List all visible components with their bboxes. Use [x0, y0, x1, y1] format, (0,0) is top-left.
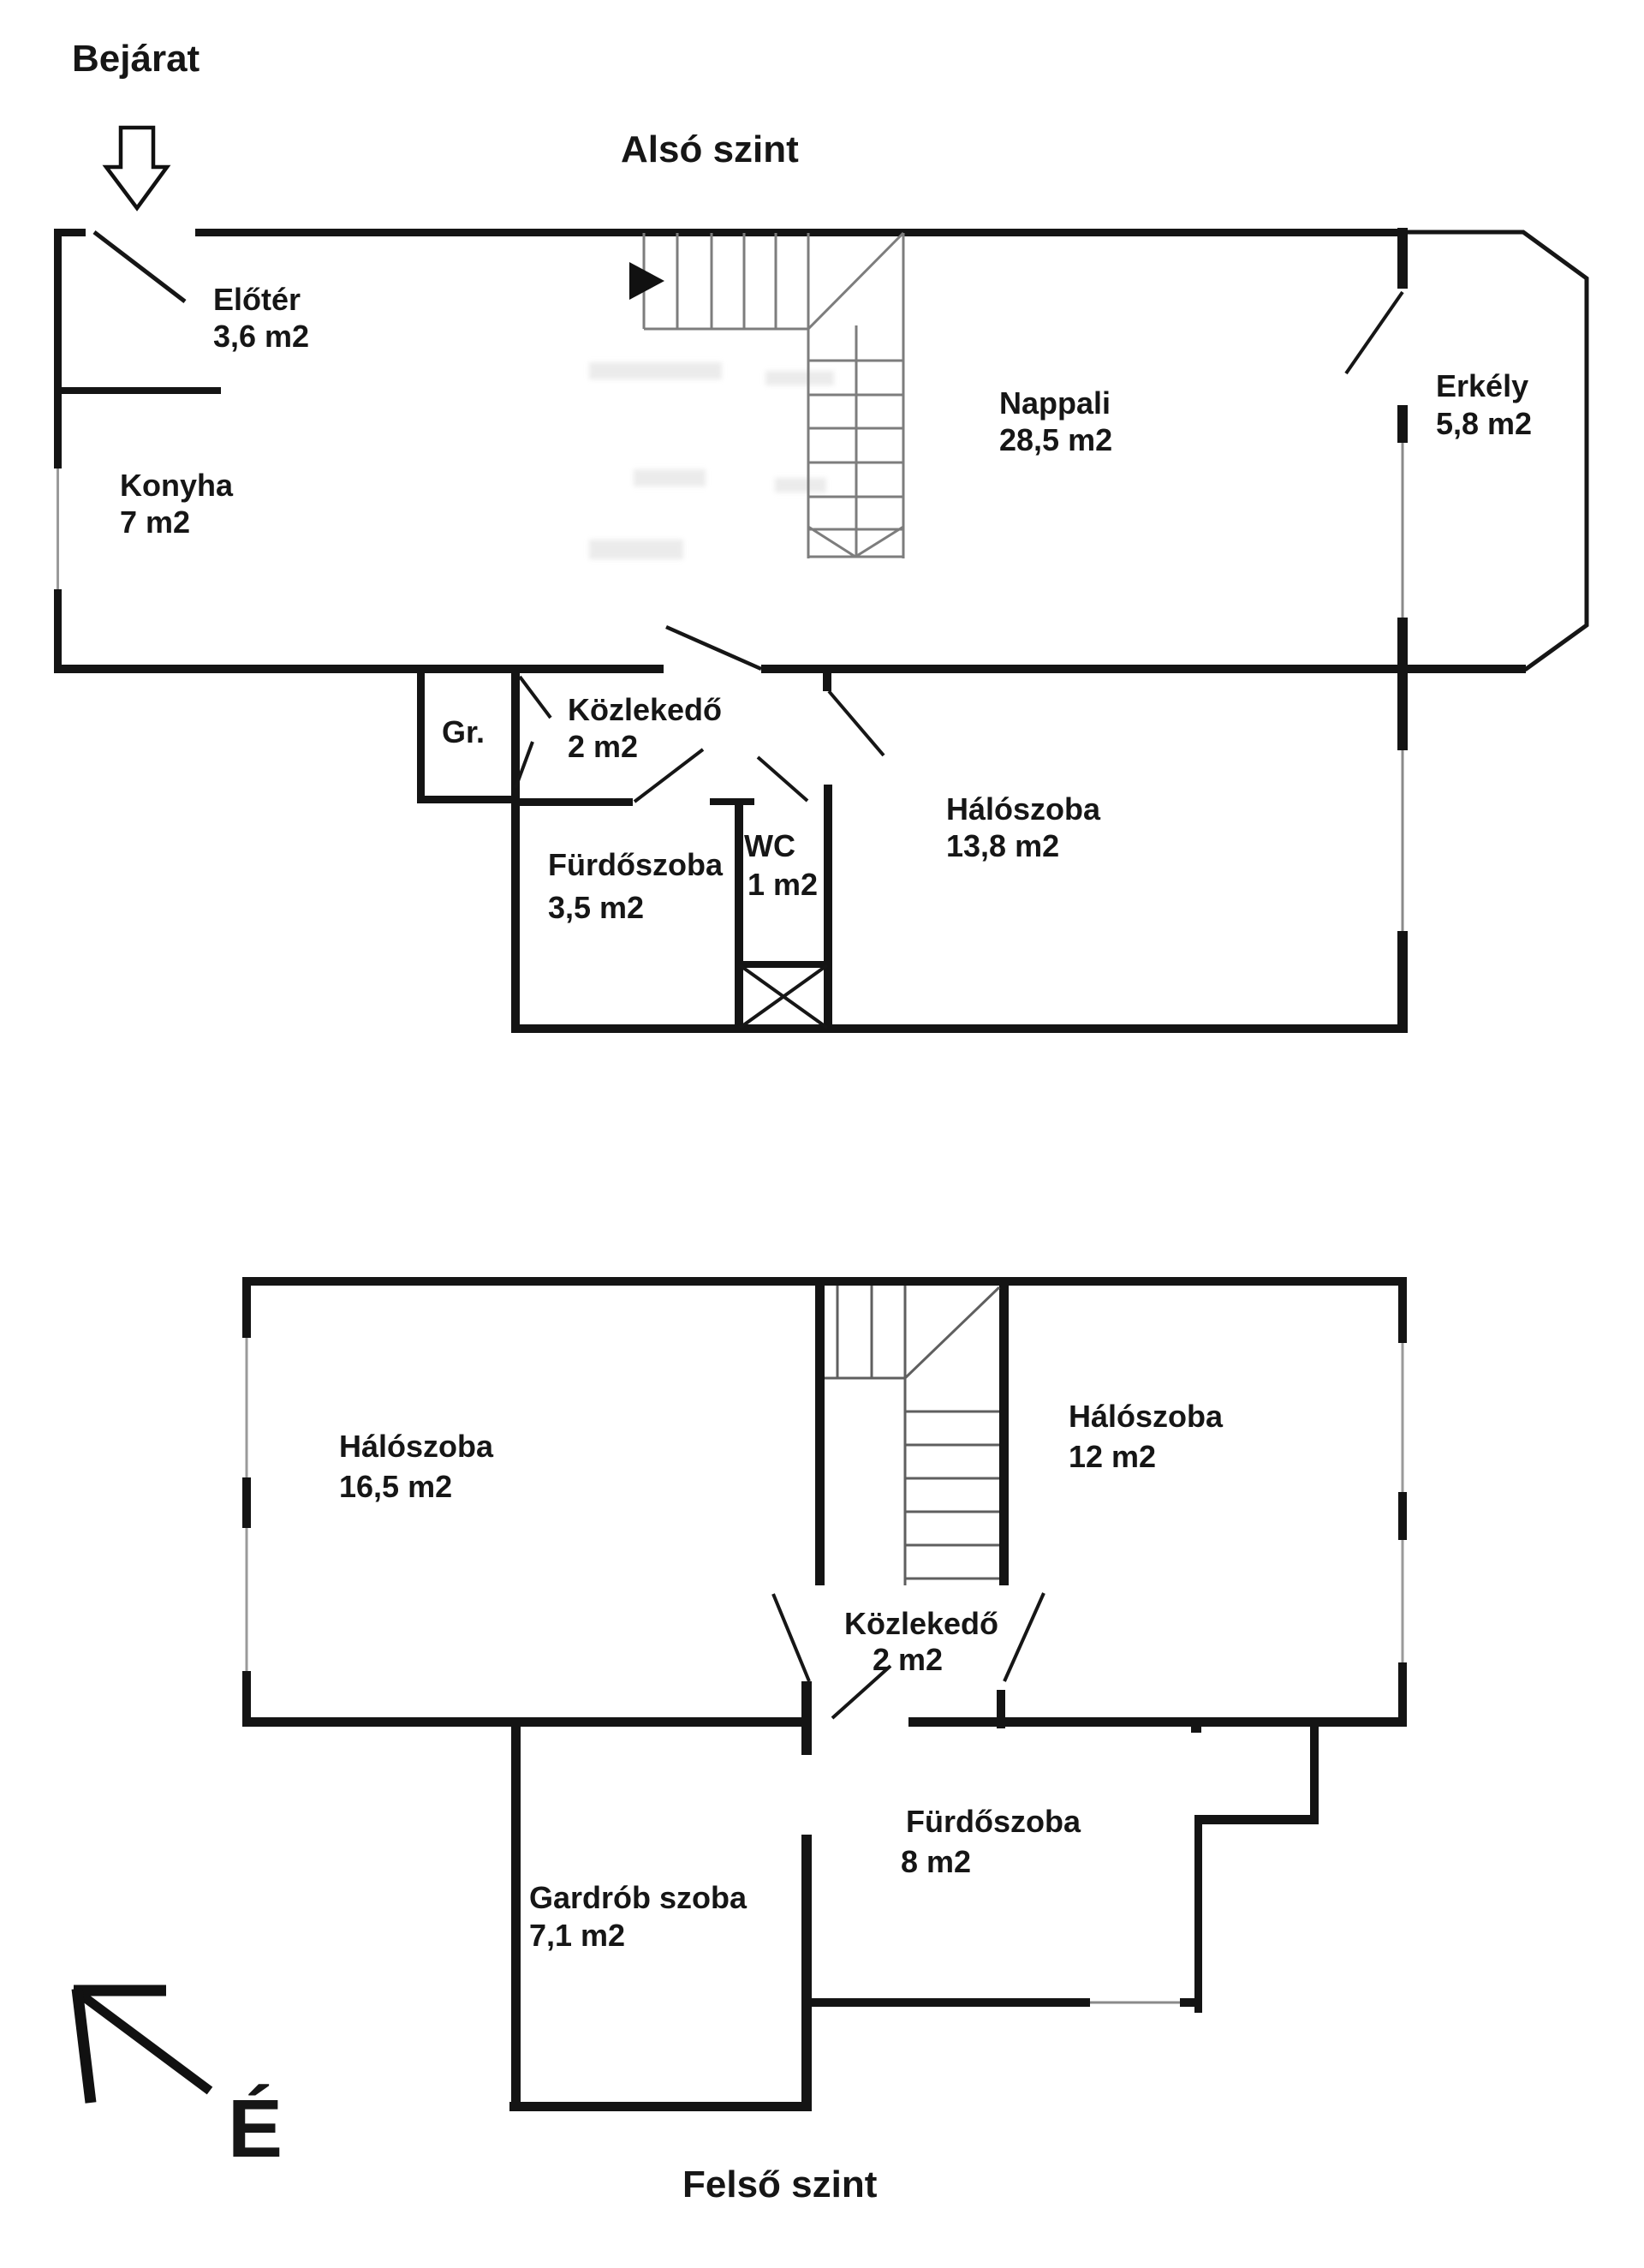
svg-text:Fürdőszoba: Fürdőszoba — [548, 847, 724, 882]
svg-text:28,5 m2: 28,5 m2 — [999, 422, 1112, 457]
svg-text:Felső szint: Felső szint — [682, 2164, 878, 2205]
svg-text:13,8 m2: 13,8 m2 — [946, 828, 1059, 863]
svg-text:WC: WC — [744, 828, 795, 863]
svg-text:Gr.: Gr. — [442, 714, 485, 749]
svg-text:Hálószoba: Hálószoba — [1069, 1399, 1224, 1434]
svg-text:É: É — [228, 2083, 283, 2175]
svg-text:Fürdőszoba: Fürdőszoba — [906, 1804, 1081, 1839]
svg-text:3,5 m2: 3,5 m2 — [548, 890, 644, 925]
svg-text:16,5 m2: 16,5 m2 — [339, 1469, 452, 1504]
svg-text:3,6 m2: 3,6 m2 — [213, 319, 309, 354]
svg-text:7,1 m2: 7,1 m2 — [529, 1918, 625, 1953]
svg-text:Közlekedő: Közlekedő — [844, 1606, 998, 1641]
svg-text:Gardrób szoba: Gardrób szoba — [529, 1880, 748, 1915]
svg-text:Nappali: Nappali — [999, 385, 1111, 421]
svg-text:Erkély: Erkély — [1436, 368, 1528, 403]
svg-text:2 m2: 2 m2 — [568, 729, 638, 764]
svg-text:Hálószoba: Hálószoba — [339, 1429, 494, 1464]
svg-text:Konyha: Konyha — [120, 468, 234, 503]
svg-text:5,8 m2: 5,8 m2 — [1436, 406, 1532, 441]
svg-text:12 m2: 12 m2 — [1069, 1439, 1156, 1474]
svg-text:Alsó szint: Alsó szint — [621, 128, 799, 170]
svg-text:Közlekedő: Közlekedő — [568, 692, 722, 727]
svg-text:Előtér: Előtér — [213, 282, 301, 317]
svg-text:1 m2: 1 m2 — [748, 867, 818, 902]
svg-text:Hálószoba: Hálószoba — [946, 791, 1101, 827]
svg-text:7 m2: 7 m2 — [120, 504, 190, 540]
svg-text:Bejárat: Bejárat — [72, 38, 200, 80]
svg-text:8 m2: 8 m2 — [901, 1844, 971, 1879]
